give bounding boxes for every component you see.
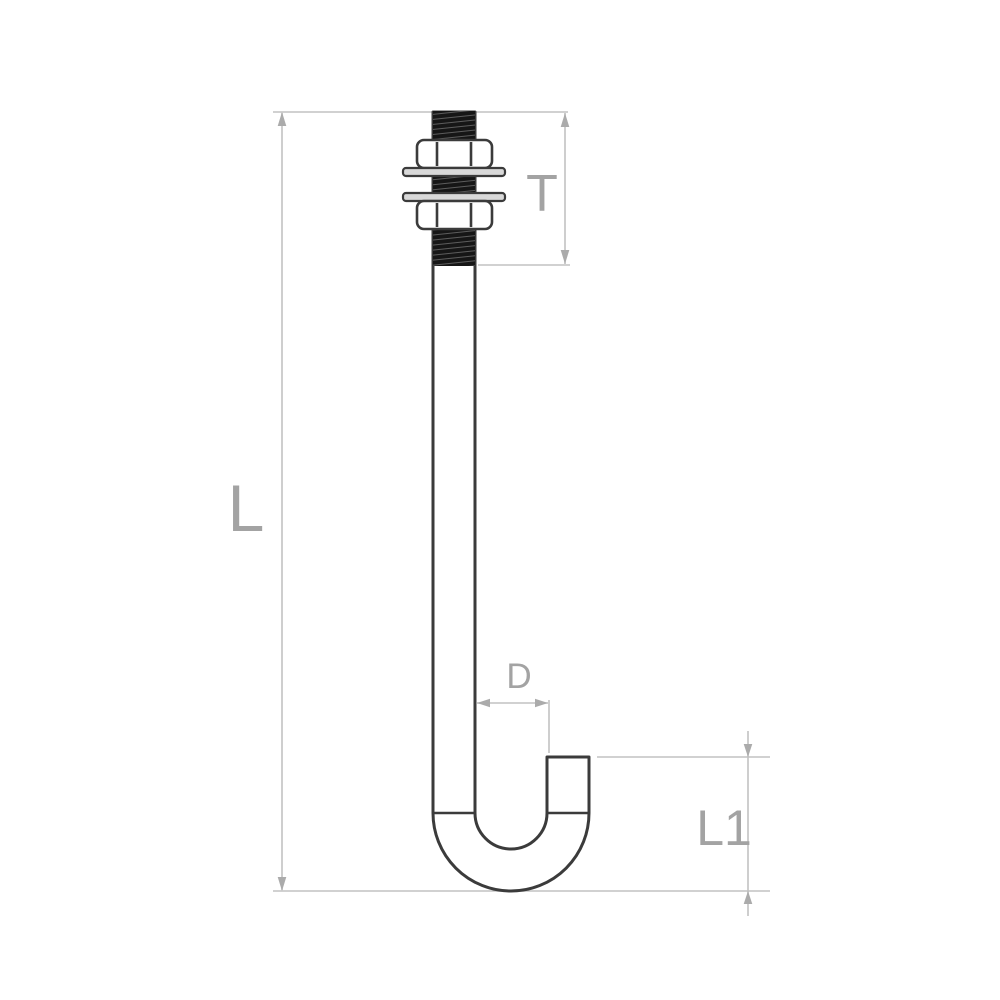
dimension-hook-height: L1 — [597, 731, 770, 916]
dimension-label-overall-length: L — [228, 471, 265, 545]
arrowhead-right-icon — [535, 699, 548, 707]
threaded-section — [433, 111, 475, 266]
dimension-label-hook-height: L1 — [696, 800, 752, 856]
drawing-canvas: L T D L1 — [0, 0, 1000, 1000]
hex-nut-top — [417, 140, 492, 168]
arrowhead-down-icon — [561, 250, 570, 264]
arrowhead-down-icon — [278, 877, 287, 891]
jbolt-body — [403, 111, 589, 891]
arrowhead-down-icon — [744, 744, 753, 757]
arrowhead-left-icon — [477, 699, 490, 707]
dimension-thread-length: T — [478, 113, 570, 265]
arrowhead-up-icon — [278, 112, 287, 126]
jbolt-technical-drawing: L T D L1 — [0, 0, 1000, 1000]
dimension-label-thread-length: T — [526, 165, 558, 223]
arrowhead-up-icon — [744, 891, 753, 904]
dimension-diameter: D — [477, 657, 549, 753]
hex-nut-bottom — [417, 201, 492, 229]
washer-top — [403, 168, 505, 176]
dimension-label-diameter: D — [506, 657, 531, 696]
arrowhead-up-icon — [561, 113, 570, 127]
dimension-overall-length: L — [228, 112, 770, 891]
